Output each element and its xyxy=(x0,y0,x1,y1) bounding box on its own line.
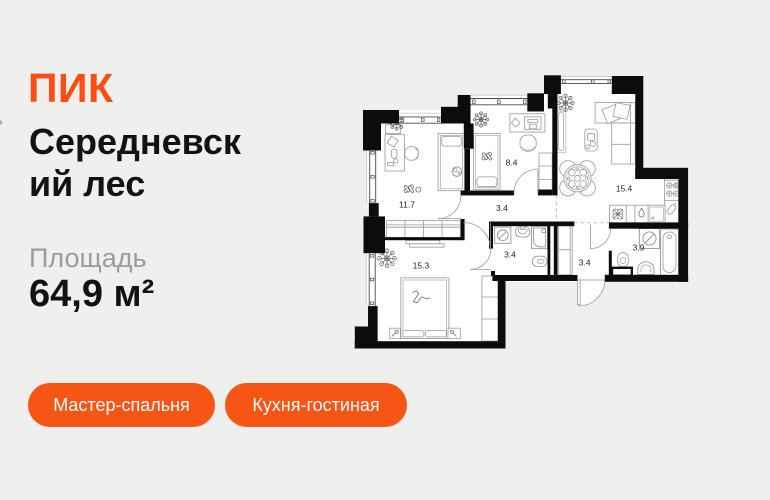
svg-text:3.9: 3.9 xyxy=(633,243,645,253)
svg-text:3.4: 3.4 xyxy=(579,257,591,267)
svg-text:3.4: 3.4 xyxy=(496,203,508,213)
svg-text:3.4: 3.4 xyxy=(504,249,516,259)
svg-text:8.4: 8.4 xyxy=(506,157,518,167)
svg-text:15.3: 15.3 xyxy=(413,260,430,270)
svg-text:11.7: 11.7 xyxy=(399,199,415,209)
svg-text:15.4: 15.4 xyxy=(616,183,633,193)
